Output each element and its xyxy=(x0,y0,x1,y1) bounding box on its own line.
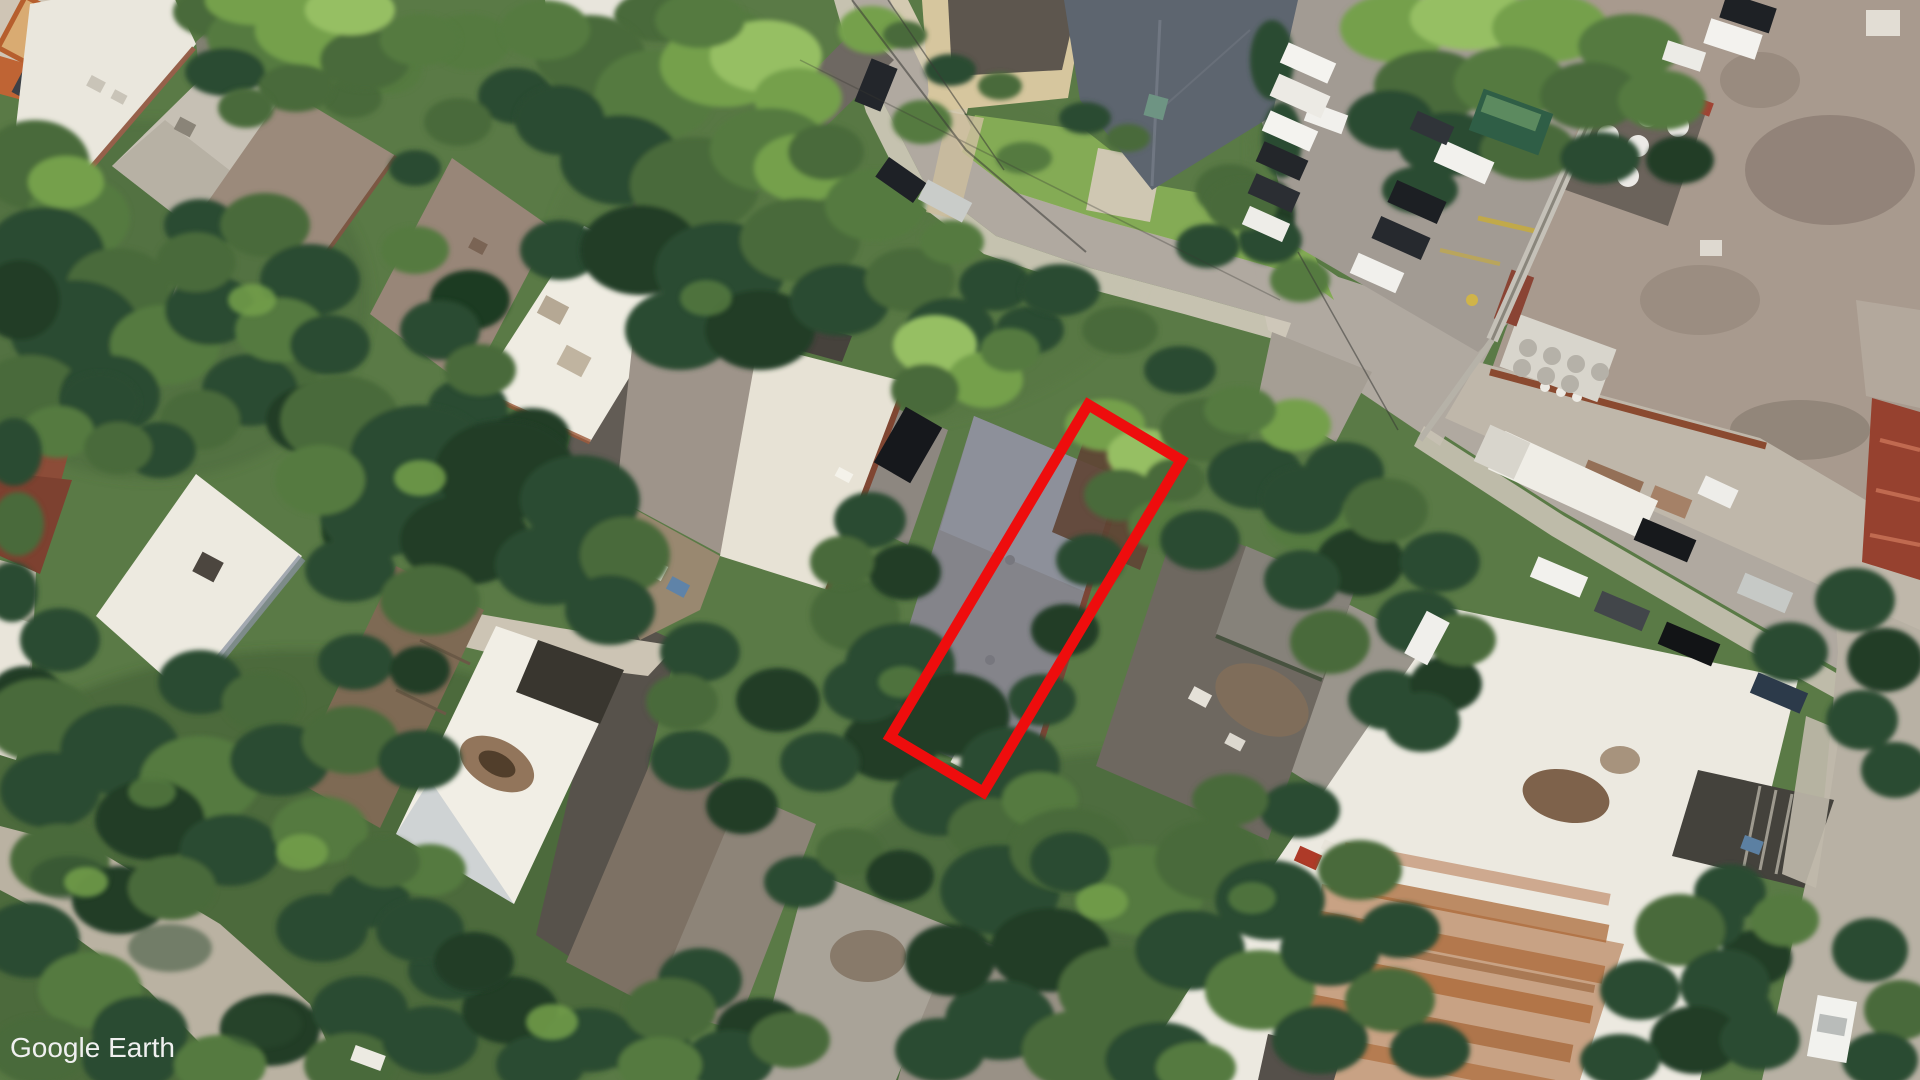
svg-text:Google Earth: Google Earth xyxy=(10,1032,175,1063)
